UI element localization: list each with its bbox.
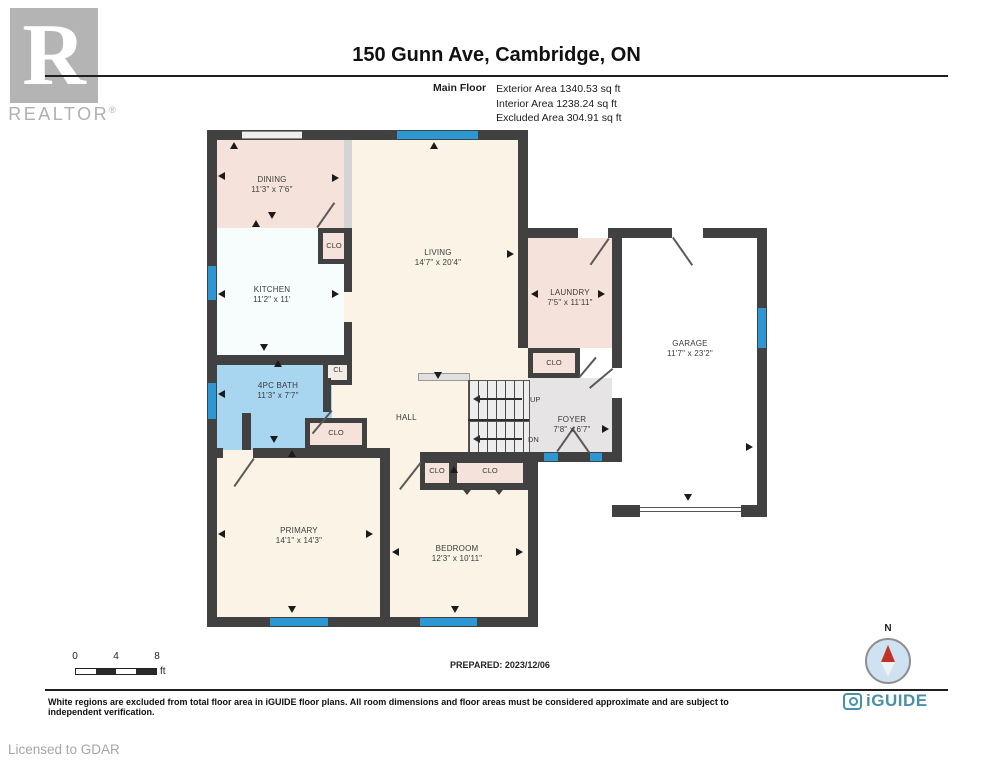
room-name: KITCHEN: [212, 285, 332, 295]
room-name: GARAGE: [630, 339, 750, 349]
stair-down-arrowhead-icon: [473, 435, 480, 443]
compass-north-label: N: [876, 623, 900, 634]
window: [758, 308, 766, 348]
scale-segment: [116, 669, 136, 674]
room-name: PRIMARY: [239, 526, 359, 536]
room-label-primary: PRIMARY 14'1" x 14'3": [239, 526, 359, 546]
direction-arrow-icon: [684, 494, 692, 501]
wall: [757, 238, 767, 517]
garage-door: [640, 507, 741, 512]
dining-living-divider: [344, 140, 352, 228]
room-dims: 11'3" x 7'6": [212, 185, 332, 195]
room-name: HALL: [396, 413, 444, 423]
room-dims: 11'2" x 11': [212, 295, 332, 305]
direction-arrow-icon: [218, 530, 225, 538]
direction-arrow-icon: [434, 372, 442, 379]
window: [590, 453, 602, 461]
room-label-dining: DINING 11'3" x 7'6": [212, 175, 332, 195]
window: [397, 131, 478, 139]
room-dims: 14'1" x 14'3": [239, 536, 359, 546]
compass-icon: [865, 638, 911, 684]
wall: [380, 452, 390, 627]
wall: [703, 228, 767, 238]
direction-arrow-icon: [332, 290, 339, 298]
stairs-up-label: UP: [530, 395, 554, 404]
direction-arrow-icon: [288, 450, 296, 457]
wall: [528, 452, 538, 627]
direction-arrow-icon: [274, 360, 282, 367]
direction-arrow-icon: [268, 212, 276, 219]
direction-arrow-icon: [288, 606, 296, 613]
direction-arrow-icon: [260, 344, 268, 351]
disclaimer-text: White regions are excluded from total fl…: [48, 697, 783, 717]
room-label-living: LIVING 14'7" x 20'4": [378, 248, 498, 268]
window: [544, 453, 558, 461]
direction-arrow-icon: [507, 250, 514, 258]
room-name: DINING: [212, 175, 332, 185]
room-dims: 11'3" x 7'7": [218, 391, 338, 401]
direction-arrow-icon: [252, 220, 260, 227]
realtor-logo-text: REALTOR®: [0, 104, 124, 125]
wall: [528, 452, 622, 462]
wall: [420, 484, 532, 490]
direction-arrow-icon: [332, 174, 339, 182]
room-dims: 11'7" x 23'2": [630, 349, 750, 359]
wall: [242, 413, 251, 450]
scale-segment: [136, 669, 156, 674]
compass-needle-north: [881, 645, 895, 662]
room-name: 4PC BATH: [218, 381, 338, 391]
room-dims: 7'8" x 6'7": [512, 425, 632, 435]
bifold-notch-icon: [460, 486, 474, 495]
wall: [612, 505, 640, 517]
excluded-area: Excluded Area 304.91 sq ft: [496, 111, 622, 126]
page-title: 150 Gunn Ave, Cambridge, ON: [0, 44, 993, 67]
scale-unit: ft: [160, 666, 172, 677]
room-name: LAUNDRY: [510, 288, 630, 298]
room-dims: 14'7" x 20'4": [378, 258, 498, 268]
window: [420, 618, 477, 626]
room-garage: [622, 238, 757, 505]
compass-needle-south: [881, 662, 895, 677]
floor-label: Main Floor: [433, 82, 486, 126]
scale-segment: [96, 669, 116, 674]
room-name: LIVING: [378, 248, 498, 258]
closet-label: CL: [318, 365, 358, 374]
scale-bar: [75, 668, 157, 675]
direction-arrow-icon: [230, 142, 238, 149]
wall: [344, 228, 352, 292]
room-dims: 12'3" x 10'11": [397, 554, 517, 564]
wall: [253, 448, 390, 458]
direction-arrow-icon: [366, 530, 373, 538]
stair-up-arrowhead-icon: [473, 395, 480, 403]
wall: [608, 228, 672, 238]
stairs-down-label: DN: [528, 435, 552, 444]
scale-tick: 0: [69, 651, 81, 662]
header-divider: [45, 75, 948, 77]
room-label-garage: GARAGE 11'7" x 23'2": [630, 339, 750, 359]
room-name: BEDROOM: [397, 544, 517, 554]
stair-down-arrow-line: [480, 438, 522, 440]
room-label-bedroom: BEDROOM 12'3" x 10'11": [397, 544, 517, 564]
iguide-logo: iGUIDE: [843, 691, 928, 711]
registered-mark: ®: [109, 105, 116, 115]
interior-area: Interior Area 1238.24 sq ft: [496, 97, 622, 112]
floor-summary: Main Floor Exterior Area 1340.53 sq ft I…: [433, 82, 622, 126]
room-label-foyer: FOYER 7'8" x 6'7": [512, 415, 632, 435]
exterior-area: Exterior Area 1340.53 sq ft: [496, 82, 622, 97]
wall: [741, 505, 767, 517]
direction-arrow-icon: [430, 142, 438, 149]
closet-label: CLO: [417, 466, 457, 475]
scale-tick: 8: [151, 651, 163, 662]
realtor-word: REALTOR: [8, 104, 109, 124]
closet-label: CLO: [314, 241, 354, 250]
bifold-notch-icon: [492, 486, 506, 495]
scale-segment: [76, 669, 96, 674]
closet-label: CLO: [306, 428, 366, 437]
wall: [207, 617, 538, 627]
direction-arrow-icon: [270, 436, 278, 443]
room-label-bath: 4PC BATH 11'3" x 7'7": [218, 381, 338, 401]
direction-arrow-icon: [746, 443, 753, 451]
wall: [518, 228, 578, 238]
room-label-laundry: LAUNDRY 7'5" x 11'11": [510, 288, 630, 308]
wall: [518, 140, 528, 238]
closet-label: CLO: [460, 466, 520, 475]
wall: [207, 130, 217, 627]
iguide-wordmark: iGUIDE: [866, 691, 928, 711]
room-label-kitchen: KITCHEN 11'2" x 11': [212, 285, 332, 305]
window: [242, 131, 302, 139]
floorplan-page: R REALTOR® 150 Gunn Ave, Cambridge, ON M…: [0, 0, 993, 768]
stair-railing: [418, 373, 470, 381]
wall: [420, 452, 532, 462]
footer-divider: [45, 689, 948, 691]
room-name: FOYER: [512, 415, 632, 425]
room-dims: 7'5" x 11'11": [510, 298, 630, 308]
stair-up-arrow-line: [480, 398, 522, 400]
window: [208, 383, 216, 419]
window: [270, 618, 328, 626]
closet-label: CLO: [524, 358, 584, 367]
direction-arrow-icon: [451, 606, 459, 613]
scale-tick: 4: [110, 651, 122, 662]
wall: [207, 448, 223, 458]
room-label-hall: HALL: [396, 413, 444, 423]
area-lines: Exterior Area 1340.53 sq ft Interior Are…: [496, 82, 622, 126]
prepared-date: PREPARED: 2023/12/06: [395, 660, 605, 670]
license-text: Licensed to GDAR: [8, 742, 120, 757]
iguide-camera-icon: [843, 693, 862, 710]
direction-arrow-icon: [516, 548, 523, 556]
